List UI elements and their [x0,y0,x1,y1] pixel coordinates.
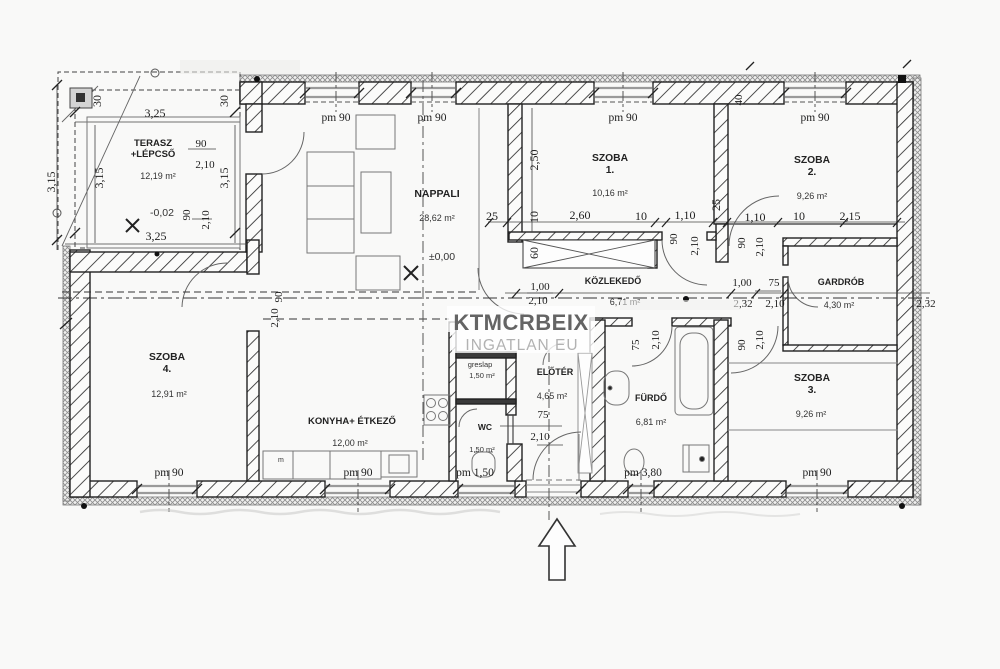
svg-text:SZOBA: SZOBA [592,153,629,164]
svg-text:2,10: 2,10 [269,308,281,328]
svg-text:10: 10 [793,209,805,223]
svg-text:25: 25 [709,199,723,211]
svg-text:2,60: 2,60 [570,208,591,222]
svg-text:SZOBA: SZOBA [149,352,186,363]
svg-text:2,10: 2,10 [200,210,212,230]
svg-text:2,10: 2,10 [195,159,215,171]
svg-text:9,26 m²: 9,26 m² [797,191,828,201]
svg-text:m: m [278,457,284,464]
svg-text:pm 90: pm 90 [608,112,637,124]
svg-text:75: 75 [769,277,781,289]
svg-text:75: 75 [630,339,642,351]
svg-text:2,32: 2,32 [916,298,935,310]
svg-text:pm 1,50: pm 1,50 [456,467,494,479]
svg-text:FÜRDŐ: FÜRDŐ [635,392,667,403]
svg-text:12,19 m²: 12,19 m² [140,171,176,181]
svg-text:10,16 m²: 10,16 m² [592,188,628,198]
svg-text:12,00 m²: 12,00 m² [332,438,368,448]
svg-text:2,15: 2,15 [840,209,861,223]
svg-text:2,10: 2,10 [754,237,766,257]
svg-text:2.: 2. [808,167,817,178]
svg-text:SZOBA: SZOBA [794,373,831,384]
svg-text:1.: 1. [606,165,615,176]
svg-text:2,10: 2,10 [754,330,766,350]
svg-text:2,10: 2,10 [650,330,662,350]
svg-text:±0,00: ±0,00 [429,251,455,263]
svg-text:NAPPALI: NAPPALI [414,188,459,200]
svg-text:90: 90 [181,209,193,221]
svg-text:40: 40 [733,94,745,106]
svg-text:9,26 m²: 9,26 m² [796,409,827,419]
svg-text:pm 90: pm 90 [802,467,831,479]
svg-text:1,00: 1,00 [530,281,550,293]
svg-text:90: 90 [736,339,748,351]
svg-text:1,50 m²: 1,50 m² [469,445,495,454]
svg-text:10: 10 [635,209,647,223]
svg-text:6,81 m²: 6,81 m² [636,417,667,427]
svg-text:-0,02: -0,02 [150,207,174,219]
svg-text:INGATLAN EU: INGATLAN EU [465,337,578,354]
svg-text:1,00: 1,00 [732,277,752,289]
svg-text:3,25: 3,25 [145,106,166,120]
svg-text:12,91 m²: 12,91 m² [151,389,187,399]
svg-text:1,10: 1,10 [745,210,766,224]
svg-text:90: 90 [668,233,680,245]
svg-text:pm 90: pm 90 [417,112,446,124]
svg-text:pm 90: pm 90 [343,467,372,479]
svg-text:10: 10 [527,211,541,223]
svg-text:90: 90 [736,237,748,249]
svg-text:KÖZLEKEDŐ: KÖZLEKEDŐ [585,275,642,286]
svg-text:WC: WC [478,422,492,432]
svg-text:30: 30 [217,95,231,107]
svg-text:4,65 m²: 4,65 m² [537,391,568,401]
svg-text:GARDRÓB: GARDRÓB [818,276,865,287]
svg-text:KTMCRBEIX: KTMCRBEIX [453,310,588,335]
svg-text:4,30 m²: 4,30 m² [824,300,855,310]
svg-text:3,15: 3,15 [92,168,106,189]
svg-text:4.: 4. [163,364,172,375]
svg-text:90: 90 [273,291,285,303]
svg-text:25: 25 [486,209,498,223]
svg-text:3,15: 3,15 [44,172,58,193]
svg-text:3,15: 3,15 [217,168,231,189]
svg-text:1,50 m²: 1,50 m² [469,371,495,380]
svg-text:pm 90: pm 90 [154,467,183,479]
svg-text:2,10: 2,10 [765,298,785,310]
svg-text:2,10: 2,10 [528,295,548,307]
svg-text:75: 75 [538,409,550,421]
svg-text:90: 90 [196,138,208,150]
svg-text:3.: 3. [808,385,817,396]
svg-text:SZOBA: SZOBA [794,155,831,166]
svg-text:TERASZ: TERASZ [134,138,172,149]
svg-text:2,10: 2,10 [689,236,701,256]
svg-text:1,10: 1,10 [675,208,696,222]
svg-text:+LÉPCSŐ: +LÉPCSŐ [131,148,176,160]
svg-text:pm 3,80: pm 3,80 [624,467,662,479]
svg-text:3,25: 3,25 [146,229,167,243]
svg-text:30: 30 [90,95,104,107]
svg-text:ELŐTÉR: ELŐTÉR [537,366,574,377]
svg-text:KONYHA+ ÉTKEZŐ: KONYHA+ ÉTKEZŐ [308,415,396,427]
svg-text:60: 60 [527,247,541,259]
svg-text:2,50: 2,50 [527,150,541,171]
svg-text:pm 90: pm 90 [800,112,829,124]
svg-text:greslap: greslap [468,360,493,369]
svg-text:28,62 m²: 28,62 m² [419,213,455,223]
svg-text:2,10: 2,10 [530,431,550,443]
svg-text:pm 90: pm 90 [321,112,350,124]
